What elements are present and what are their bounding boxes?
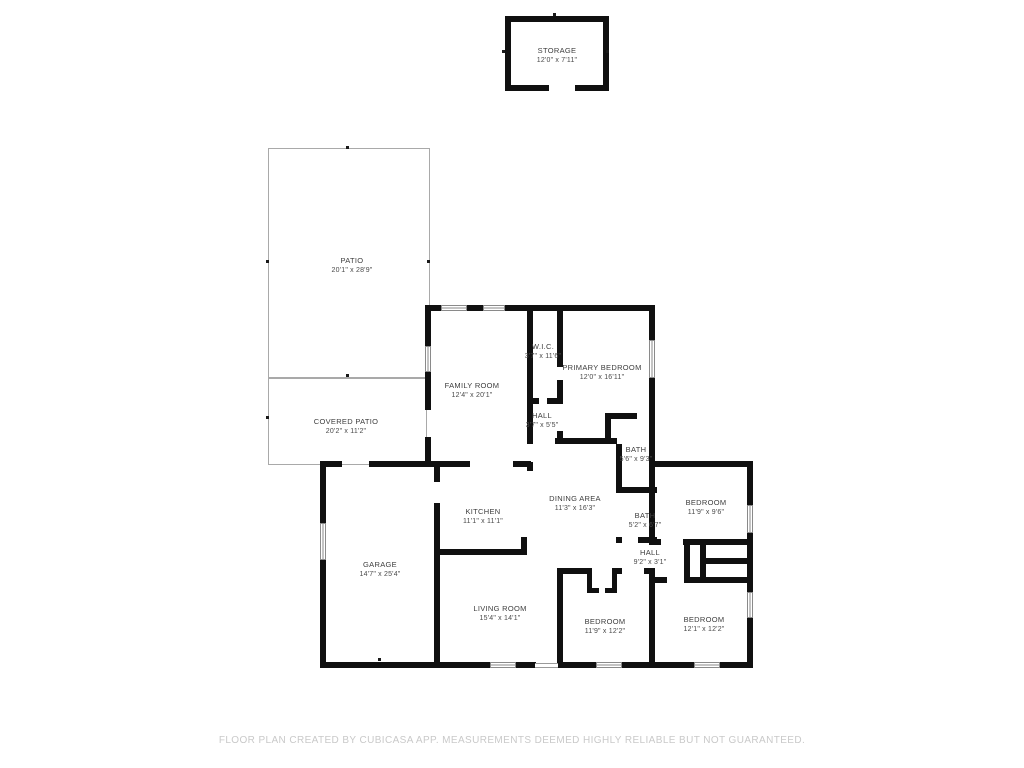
room-dims: 11'1" x 11'1" — [463, 517, 503, 527]
window — [483, 305, 505, 311]
room-dims: 3'7" x 5'5" — [526, 421, 559, 431]
room-name: BEDROOM — [684, 615, 725, 625]
wall — [605, 588, 617, 593]
window — [490, 662, 516, 668]
room-dims: 11'3" x 16'3" — [549, 504, 601, 514]
tick-mark — [346, 374, 349, 377]
wall — [513, 461, 531, 467]
wall — [527, 398, 539, 404]
wall — [706, 558, 747, 564]
sliding-door — [535, 663, 558, 668]
window — [694, 662, 720, 668]
room-dims: 12'0" x 16'11" — [562, 373, 641, 383]
room-dims: 12'1" x 12'2" — [684, 625, 725, 635]
wall — [683, 539, 753, 545]
wall — [747, 467, 753, 505]
wall — [557, 568, 563, 668]
room-dims: 9'2" x 3'1" — [634, 558, 667, 568]
room-dims: 5'6" x 9'3" — [620, 455, 653, 465]
wall — [616, 537, 622, 543]
wall — [649, 539, 661, 545]
room-dims: 20'1" x 28'9" — [332, 266, 373, 276]
room-name: LIVING ROOM — [473, 604, 526, 614]
room-dims: 3'7" x 11'6" — [525, 352, 561, 362]
room-label-dining-area: DINING AREA 11'3" x 16'3" — [549, 494, 601, 514]
wall — [720, 662, 753, 668]
tick-mark — [346, 146, 349, 149]
room-name: HALL — [526, 411, 559, 421]
room-name: W.I.C. — [525, 342, 561, 352]
wall — [649, 461, 753, 467]
footer-disclaimer: FLOOR PLAN CREATED BY CUBICASA APP. MEAS… — [0, 735, 1024, 746]
wall — [320, 467, 326, 523]
wall — [605, 413, 611, 438]
wall — [505, 16, 511, 91]
wall — [320, 662, 440, 668]
room-name: BEDROOM — [585, 617, 626, 627]
wall — [563, 662, 596, 668]
wall — [369, 461, 440, 467]
wall — [555, 438, 617, 444]
window — [747, 592, 753, 618]
window — [747, 505, 753, 533]
room-name: PATIO — [332, 256, 373, 266]
wall — [575, 85, 609, 91]
wall — [612, 568, 622, 574]
wall — [434, 503, 440, 668]
room-name: PRIMARY BEDROOM — [562, 363, 641, 373]
window — [441, 305, 467, 311]
room-name: BEDROOM — [686, 498, 727, 508]
tick-mark — [378, 658, 381, 661]
wall — [434, 461, 440, 482]
room-dims: 12'4" x 20'1" — [445, 391, 500, 401]
room-dims: 14'7" x 25'4" — [360, 570, 401, 580]
window — [320, 523, 326, 560]
room-label-primary-bedroom: PRIMARY BEDROOM 12'0" x 16'11" — [562, 363, 641, 383]
room-label-bath-hall: BATH 5'2" x 6'7" — [629, 511, 662, 531]
room-name: COVERED PATIO — [314, 417, 378, 427]
room-name: DINING AREA — [549, 494, 601, 504]
room-dims: 5'2" x 6'7" — [629, 521, 662, 531]
room-dims: 15'4" x 14'1" — [473, 614, 526, 624]
wall — [425, 372, 431, 410]
tick-mark — [553, 13, 556, 16]
window — [425, 346, 431, 372]
window — [649, 340, 655, 378]
wall — [505, 85, 549, 91]
wall — [320, 560, 326, 668]
tick-mark — [502, 50, 505, 53]
wall — [649, 568, 655, 668]
room-label-hall-upper: HALL 3'7" x 5'5" — [526, 411, 559, 431]
wall — [649, 311, 655, 340]
room-dims: 12'0" x 7'11" — [537, 56, 577, 66]
room-label-hall-lower: HALL 9'2" x 3'1" — [634, 548, 667, 568]
wall — [425, 311, 431, 346]
room-label-bedroom-south-left: BEDROOM 11'9" x 12'2" — [585, 617, 626, 637]
room-dims: 11'9" x 9'6" — [686, 508, 727, 518]
room-name: HALL — [634, 548, 667, 558]
wall — [587, 588, 599, 593]
wall — [655, 662, 694, 668]
wall — [434, 662, 490, 668]
wall — [516, 662, 536, 668]
tick-mark — [606, 50, 609, 53]
wall — [603, 16, 609, 91]
room-label-wic: W.I.C. 3'7" x 11'6" — [525, 342, 561, 362]
room-dims: 11'9" x 12'2" — [585, 627, 626, 637]
wall — [440, 549, 527, 555]
wall — [644, 568, 649, 574]
room-name: BATH — [620, 445, 653, 455]
wall — [521, 537, 527, 555]
room-label-garage: GARAGE 14'7" x 25'4" — [360, 560, 401, 580]
wall — [622, 662, 649, 668]
wall — [557, 380, 563, 404]
window — [596, 662, 622, 668]
wall — [505, 16, 609, 22]
room-name: BATH — [629, 511, 662, 521]
room-label-kitchen: KITCHEN 11'1" x 11'1" — [463, 507, 503, 527]
room-name: GARAGE — [360, 560, 401, 570]
wall — [655, 577, 667, 583]
room-name: STORAGE — [537, 46, 577, 56]
floor-plan-canvas: STORAGE 12'0" x 7'11" PATIO 20'1" x 28'9… — [0, 0, 1024, 768]
room-label-bedroom-northeast: BEDROOM 11'9" x 9'6" — [686, 498, 727, 518]
room-label-storage: STORAGE 12'0" x 7'11" — [537, 46, 577, 66]
room-name: FAMILY ROOM — [445, 381, 500, 391]
wall — [747, 618, 753, 668]
room-label-covered-patio: COVERED PATIO 20'2" x 11'2" — [314, 417, 378, 437]
room-label-patio: PATIO 20'1" x 28'9" — [332, 256, 373, 276]
room-label-family-room: FAMILY ROOM 12'4" x 20'1" — [445, 381, 500, 401]
room-label-bath-primary: BATH 5'6" x 9'3" — [620, 445, 653, 465]
wall — [688, 577, 700, 583]
room-dims: 20'2" x 11'2" — [314, 427, 378, 437]
room-label-bedroom-south-right: BEDROOM 12'1" x 12'2" — [684, 615, 725, 635]
room-name: KITCHEN — [463, 507, 503, 517]
tick-mark — [427, 260, 430, 263]
tick-mark — [266, 416, 269, 419]
tick-mark — [266, 260, 269, 263]
wall — [700, 577, 753, 583]
room-label-living-room: LIVING ROOM 15'4" x 14'1" — [473, 604, 526, 624]
